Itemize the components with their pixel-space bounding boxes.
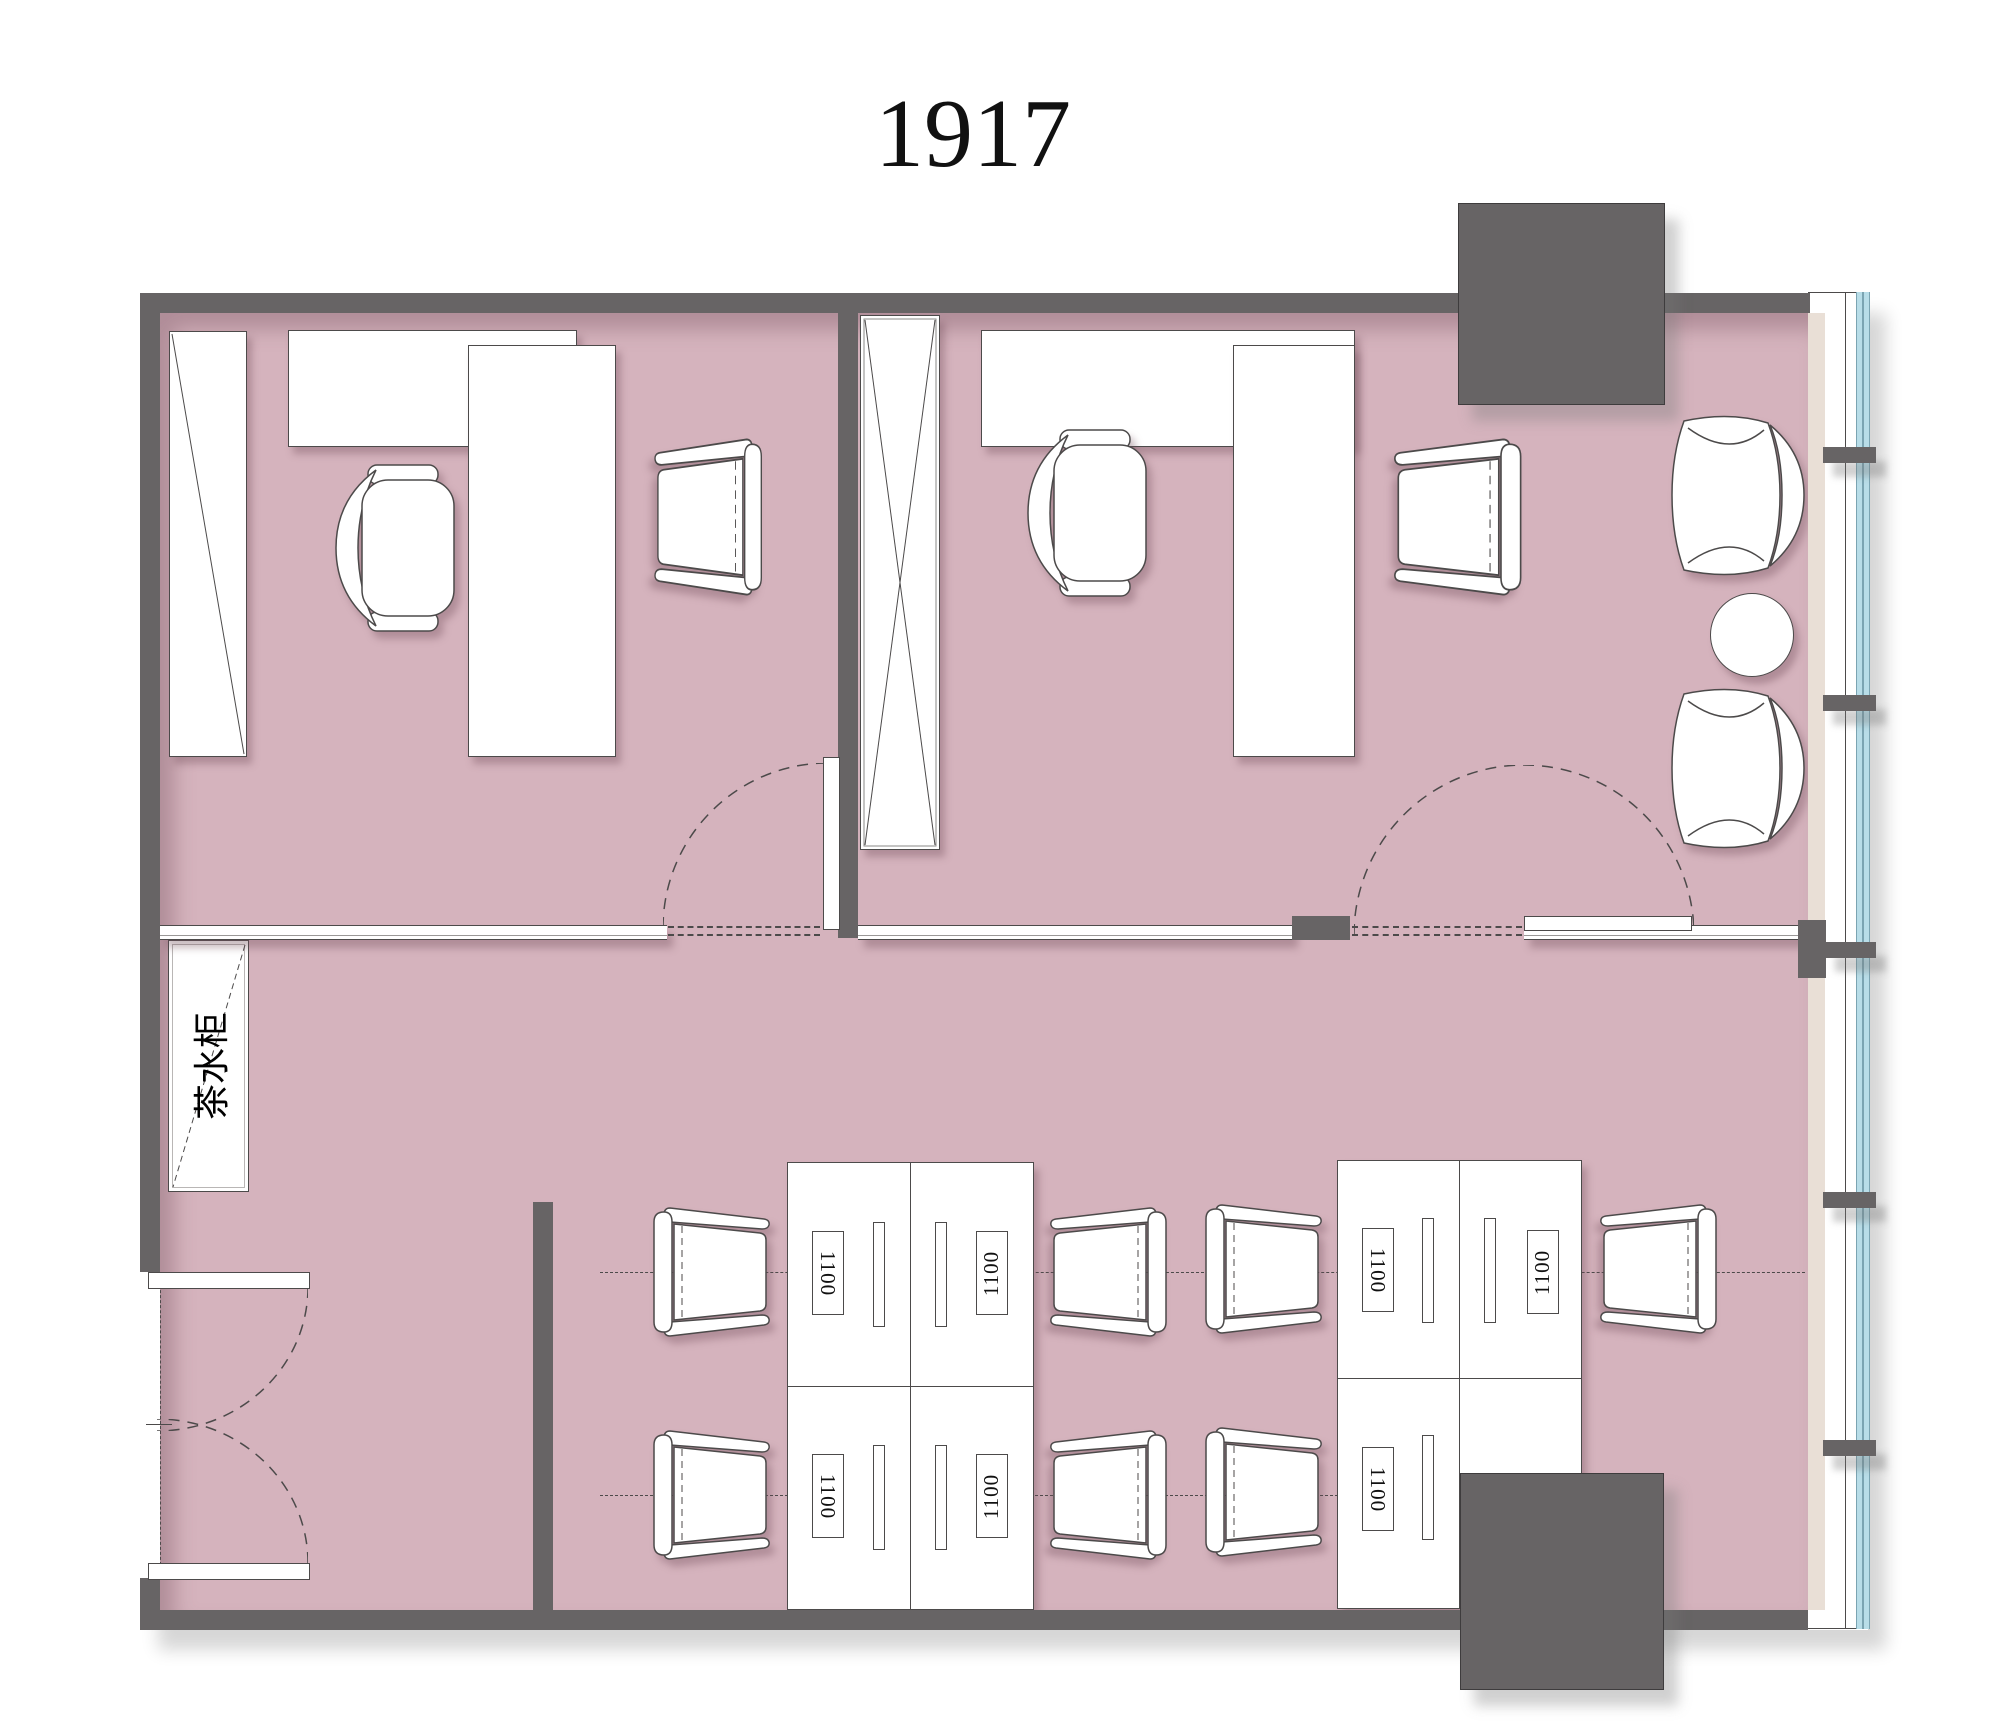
desk-size-label: 1100 <box>976 1454 1008 1538</box>
window-mullion <box>1823 695 1876 711</box>
partition-band <box>160 925 667 940</box>
guest-chair-room1 <box>645 437 765 597</box>
tea-water-cabinet: 茶水柜 <box>168 940 249 1192</box>
window-mullion <box>1823 1440 1876 1456</box>
cluster-divider <box>788 1386 1033 1387</box>
desk-slot <box>873 1445 885 1550</box>
work-chair <box>1202 1426 1332 1558</box>
door-closed-dashes-room1 <box>668 934 820 936</box>
work-chair <box>650 1206 780 1338</box>
task-chair-room1 <box>322 462 457 634</box>
structural-column-top <box>1458 203 1665 405</box>
desk-room2-return <box>1233 345 1355 757</box>
door-closed-dashes-room2 <box>1352 934 1522 936</box>
desk-size-label: 1100 <box>1362 1228 1394 1312</box>
wardrobe-cabinet-room1 <box>169 331 247 757</box>
desk-size-label: 1100 <box>1527 1230 1559 1314</box>
guest-chair-room2 <box>1383 437 1525 597</box>
wardrobe-diagonal-icon <box>170 332 246 756</box>
desk-slot <box>1484 1218 1496 1323</box>
door-leaf-room2 <box>1524 916 1692 931</box>
floor-plan-page: 1917 <box>0 0 2000 1728</box>
partition-band <box>858 925 1292 940</box>
entrance-swing-arc-bottom <box>157 1419 308 1568</box>
entrance-meeting-tick <box>146 1424 172 1425</box>
wall-room-divider <box>838 313 858 938</box>
desk-size-label: 1100 <box>976 1231 1008 1315</box>
desk-slot <box>1422 1218 1434 1323</box>
window-mullion <box>1823 1192 1876 1208</box>
door-closed-dashes-room2 <box>1352 926 1522 928</box>
window-frame-line <box>1845 292 1846 1629</box>
cabinet-cross-icon <box>861 316 939 849</box>
door-swing-arc-room2 <box>1354 765 1694 940</box>
cluster-divider <box>1338 1378 1581 1379</box>
work-chair <box>1202 1203 1332 1335</box>
structural-column-bottom <box>1460 1473 1664 1690</box>
desk-slot <box>935 1445 947 1550</box>
desk-slot <box>1422 1435 1434 1540</box>
door-leaf-room1 <box>823 757 840 930</box>
window-mullion <box>1825 942 1876 958</box>
x-cabinet-room2 <box>860 315 940 850</box>
lounge-chair-bottom <box>1652 688 1812 850</box>
entrance-swing-arc-top <box>157 1287 308 1436</box>
door-swing-arc-room1 <box>663 763 828 933</box>
entrance-door-leaf-top <box>148 1272 310 1289</box>
window-mullion <box>1823 447 1876 463</box>
work-chair <box>650 1429 780 1561</box>
desk-size-label: 1100 <box>1362 1447 1394 1531</box>
work-chair <box>1590 1203 1720 1335</box>
lounge-chair-top <box>1652 415 1812 577</box>
page-title: 1917 <box>0 78 1946 190</box>
desk-slot <box>873 1222 885 1327</box>
partition-window-junction <box>1798 920 1826 978</box>
round-side-table <box>1710 593 1794 677</box>
entrance-closed-dash <box>160 1280 161 1570</box>
tea-cabinet-label: 茶水柜 <box>183 1012 235 1120</box>
task-chair-room2 <box>1014 427 1149 599</box>
desk-size-label: 1100 <box>812 1454 844 1538</box>
window-glazing-line <box>1863 292 1870 1629</box>
desk-room1-return <box>468 345 616 757</box>
work-chair <box>1040 1429 1170 1561</box>
desk-size-label: 1100 <box>812 1231 844 1315</box>
door-closed-dashes-room1 <box>668 926 820 928</box>
partition-door-jamb <box>1292 916 1350 940</box>
desk-cluster-left <box>787 1162 1034 1610</box>
entrance-door-leaf-bottom <box>148 1563 310 1580</box>
desk-slot <box>935 1222 947 1327</box>
wall-left-upper <box>140 293 160 1272</box>
work-chair <box>1040 1206 1170 1338</box>
wall-stub-open-area <box>533 1202 553 1610</box>
window-glazing-line <box>1856 292 1863 1629</box>
